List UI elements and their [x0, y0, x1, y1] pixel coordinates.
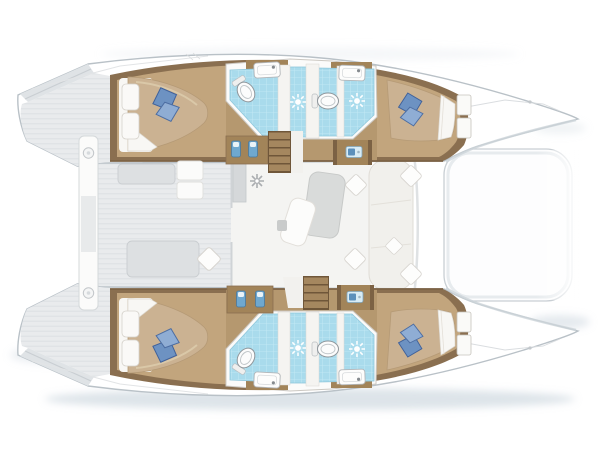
galley-unit [346, 147, 362, 158]
sink-tap [249, 141, 258, 157]
cockpit-bench-aft [118, 164, 175, 184]
vent-fan-icon [250, 174, 264, 188]
cockpit-bench-fwd [127, 241, 199, 277]
sink-tap [232, 141, 241, 157]
cockpit-seat [177, 182, 203, 199]
galley-unit [347, 292, 363, 303]
table-pedestal [277, 220, 287, 231]
cleat-center [87, 291, 91, 295]
stair-landing [291, 131, 303, 173]
sink-tap [237, 291, 246, 307]
trampoline-fade [536, 150, 588, 300]
cockpit-seat [177, 161, 203, 180]
stern-crossbar [79, 136, 98, 310]
galley-aft-module [233, 163, 246, 202]
catamaran-floor-plan [0, 0, 600, 450]
floor-plan-canvas [0, 0, 600, 450]
trampoline [444, 149, 588, 301]
galley-counter [227, 286, 273, 313]
sink-tap [256, 291, 265, 307]
cleat-center [87, 151, 91, 155]
